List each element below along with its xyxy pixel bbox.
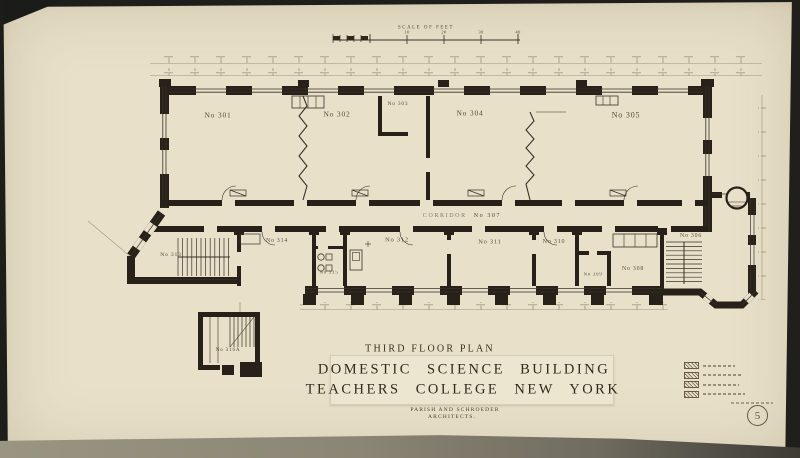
- legend-label-illegible: [703, 393, 745, 395]
- legend-row: [684, 391, 745, 398]
- stairs: [178, 238, 702, 284]
- legend-row: [684, 372, 745, 379]
- material-swatch-icon: [684, 391, 699, 398]
- room-label-305: No 305: [612, 111, 641, 120]
- stamp-caption-illegible: [731, 402, 773, 404]
- architects-line1: PARISH AND SCHROEDER: [410, 407, 499, 413]
- legend-row: [684, 381, 745, 388]
- legend-label-illegible: [703, 365, 735, 367]
- scale-bar-graphic: [333, 34, 520, 44]
- room-label-310: No 310: [543, 239, 566, 245]
- legend-label-illegible: [703, 374, 743, 376]
- room-label-301: No 301: [204, 111, 231, 120]
- room-label-311: No 311: [478, 239, 502, 246]
- material-swatch-icon: [684, 362, 699, 369]
- room-label-308: No 308: [622, 266, 644, 272]
- drawing-sheet: SCALE OF FEET 10 20 30 40 No 301 No 302 …: [0, 0, 800, 458]
- architects-line2: ARCHITECTS.: [428, 414, 476, 420]
- photograph-of-drawing: { "drawing": { "scale_bar": { "label": "…: [0, 0, 800, 458]
- room-label-306: No 306: [680, 233, 702, 239]
- room-label-315: No 315: [319, 271, 338, 276]
- scale-tick-20: 20: [441, 30, 446, 35]
- room-label-302: No 302: [323, 110, 350, 119]
- material-swatch-icon: [684, 381, 699, 388]
- room-label-corridor-307: CORRIDORNo 307: [423, 213, 501, 219]
- scale-tick-30: 30: [478, 30, 483, 35]
- room-label-316a: No 316A: [216, 347, 241, 353]
- legend-label-illegible: [703, 384, 739, 386]
- scale-tick-10: 10: [404, 30, 409, 35]
- building-name-line1: DOMESTIC SCIENCE BUILDING: [318, 362, 610, 379]
- scale-tick-40: 40: [515, 30, 520, 35]
- corridor-number: No 307: [474, 213, 501, 219]
- sheet-number-stamp: 5: [747, 405, 768, 426]
- room-label-312: No 312: [385, 237, 409, 244]
- room-label-314: No 314: [266, 238, 288, 244]
- corridor-word: CORRIDOR: [423, 213, 467, 219]
- room-label-313: No 313: [160, 252, 181, 258]
- detached-room: [198, 302, 262, 377]
- room-label-303: No 303: [388, 101, 409, 107]
- material-swatch-icon: [684, 372, 699, 379]
- plan-title: THIRD FLOOR PLAN: [365, 344, 495, 355]
- room-label-304: No 304: [456, 109, 483, 118]
- building-name-line2: TEACHERS COLLEGE NEW YORK: [306, 382, 621, 399]
- room-label-309: No 309: [583, 273, 602, 278]
- legend-row: [684, 362, 745, 369]
- materials-legend: [684, 362, 745, 400]
- sheet-number: 5: [755, 410, 761, 422]
